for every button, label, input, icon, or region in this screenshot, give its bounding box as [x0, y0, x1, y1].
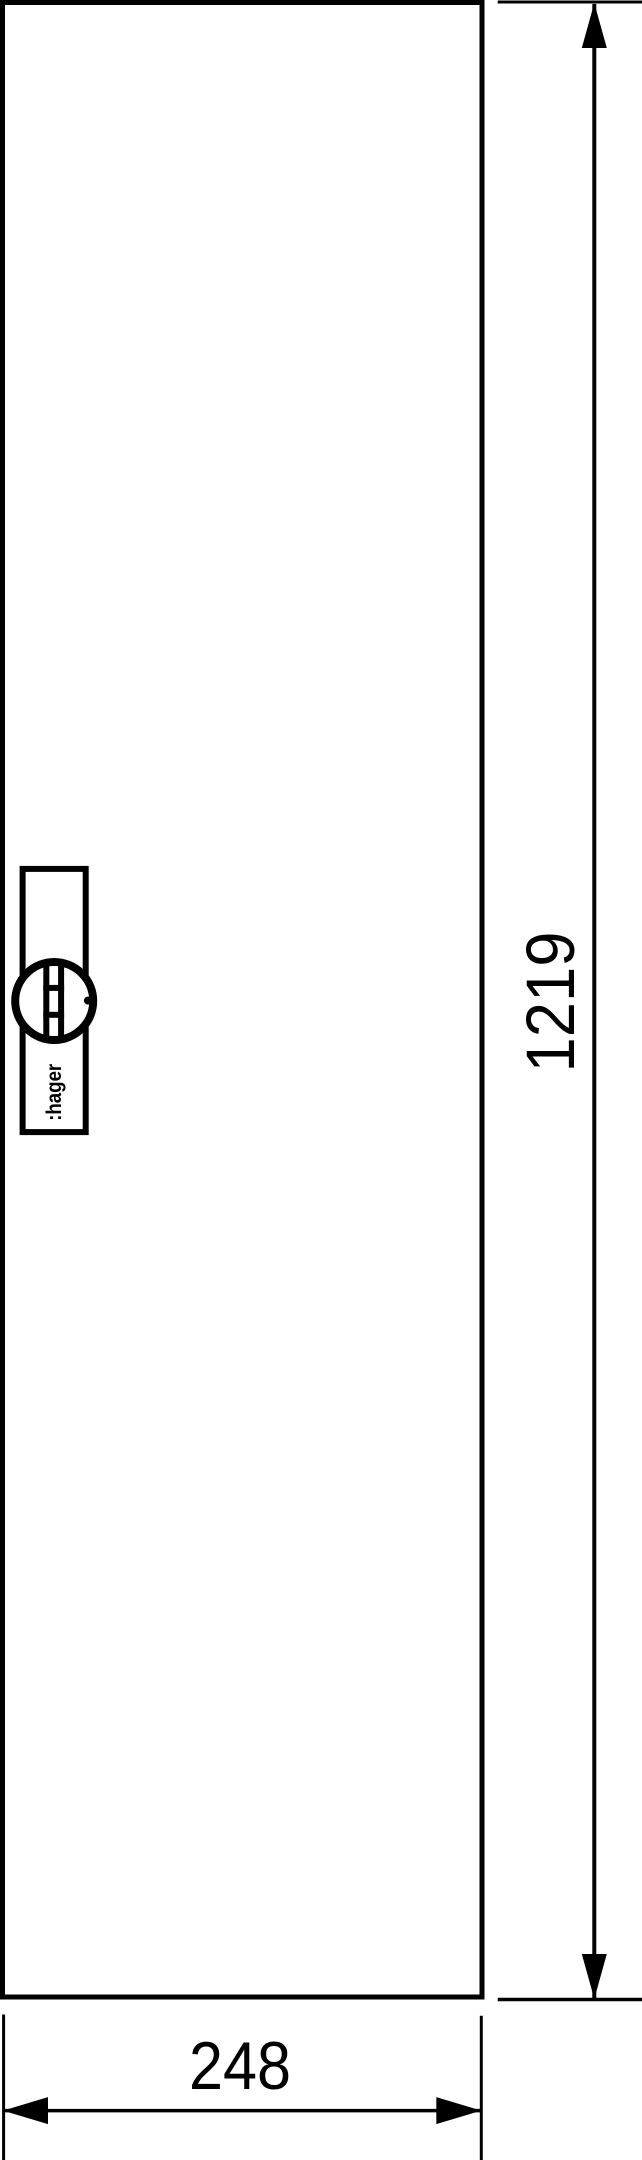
- svg-text:248: 248: [189, 2028, 291, 2104]
- svg-text:1219: 1219: [512, 932, 589, 1073]
- svg-text::hager: :hager: [43, 1064, 66, 1121]
